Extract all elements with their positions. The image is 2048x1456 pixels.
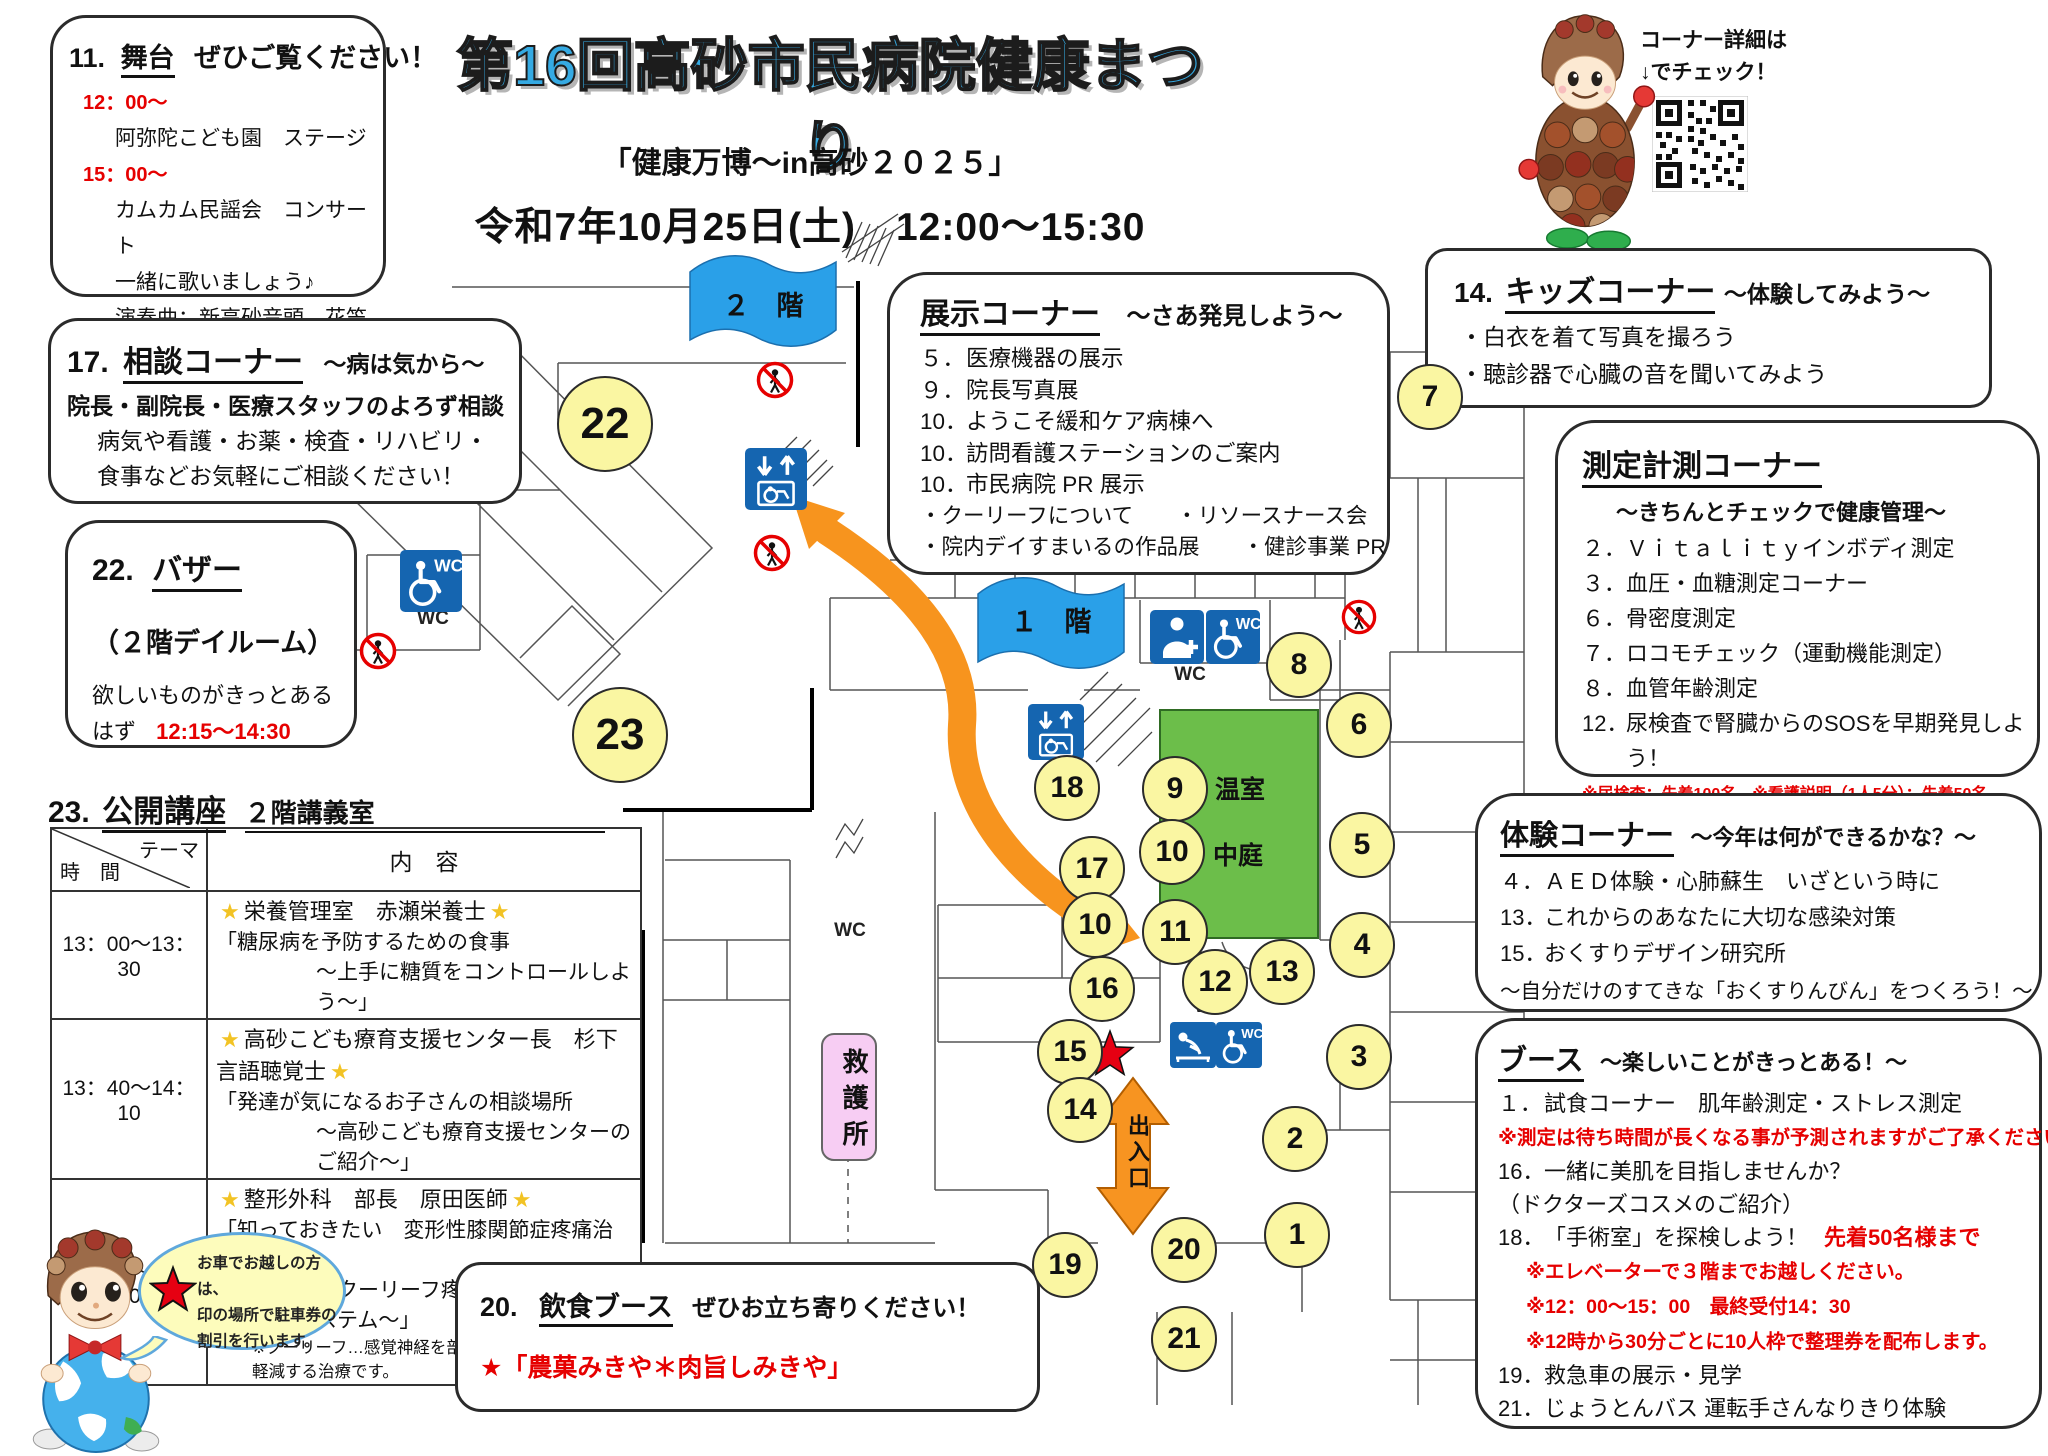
lecture-time: 13：00～13：30: [51, 891, 207, 1019]
speech-lines: お車でお越しの方は、印の場所で駐車券の割引を行います。: [197, 1251, 343, 1355]
kids-title: キッズコーナー: [1505, 276, 1715, 314]
notice-text: ※12時から30分ごとに10人枠で整理券を配布します。: [1526, 1331, 1998, 1353]
food-heading: 20. 飲食ブース ぜひお立ち寄りください！: [480, 1285, 1037, 1324]
booth-heading: ブース ～楽しいことがきっとある！～: [1498, 1037, 2039, 1079]
booth-line: ※測定は待ち時間が長くなる事が予測されますがご了承ください。: [1498, 1120, 2039, 1155]
consult-corner-box: 17. 相談コーナー ～病は気から～ 院長・副院長・医療スタッフのよろず相談病気…: [48, 318, 522, 504]
consult-line: 病気や看護・お薬・検査・リハビリ・: [97, 424, 519, 459]
exhibit-item: ９．院長写真展: [920, 375, 1387, 407]
stage-title: 舞台: [121, 43, 175, 78]
bazaar-heading: 22. バザー: [92, 545, 354, 589]
experience-corner-box: 体験コーナー ～今年は何ができるかな？～ ４．ＡＥＤ体験・心肺蘇生 いざという時…: [1475, 793, 2042, 1012]
consult-line: 食事などお気軽にご相談ください！: [97, 459, 519, 494]
experience-item: 15．おくすりデザイン研究所: [1500, 936, 2039, 972]
event-datetime: 令和7年10月25日(土) 12:00～15:30: [440, 196, 1180, 252]
map-booth-circle-8: 8: [1266, 632, 1332, 698]
map-booth-circle-18: 18: [1034, 755, 1100, 821]
item-number: ４．: [1500, 864, 1544, 900]
booth-line: １．試食コーナー 肌年齢測定・ストレス測定: [1498, 1087, 2039, 1120]
item-number: 10．: [920, 469, 966, 501]
speech-bubble-tail: [120, 1336, 180, 1376]
lecture-line: 「糖尿病を予防するための食事: [216, 926, 632, 956]
kids-corner-box: 14. キッズコーナー ～体験してみよう～ ・白衣を着て写真を撮ろう・聴診器で心…: [1425, 248, 1992, 408]
map-booth-circle-7: 7: [1397, 364, 1463, 430]
item-text: 骨密度測定: [1626, 601, 1736, 636]
item-text: 「手術室」を探検しよう！: [1544, 1225, 1808, 1250]
booth-tail: ～楽しいことがきっとある！～: [1600, 1050, 1907, 1075]
item-number: 21．: [1498, 1392, 1544, 1425]
measure-item: ３．血圧・血糖測定コーナー: [1582, 566, 2037, 601]
stage-line: カムカム民謡会 コンサート: [115, 193, 383, 265]
lecture-heading: 23. 公開講座 ２階講義室: [48, 786, 605, 831]
item-number: ９．: [920, 375, 966, 407]
exhibit-title: 展示コーナー: [920, 298, 1100, 336]
item-text: 尿検査で腎臓からのSOSを早期発見しよう！: [1626, 706, 2037, 776]
map-booth-circle-16: 16: [1069, 956, 1135, 1022]
parking-star-icon: [149, 1261, 197, 1317]
lecture-speaker: ★栄養管理室 赤瀬栄養士★: [216, 894, 632, 926]
speech-line: 印の場所で駐車券の: [197, 1303, 343, 1329]
consult-tail: ～病は気から～: [323, 351, 484, 377]
measure-heading: 測定計測コーナー: [1582, 441, 2037, 485]
exhibit-item: 10．訪問看護ステーションのご案内: [920, 438, 1387, 470]
kids-heading: 14. キッズコーナー ～体験してみよう～: [1454, 267, 1989, 311]
consult-lines: 院長・副院長・医療スタッフのよろず相談病気や看護・お薬・検査・リハビリ・食事など…: [67, 389, 519, 494]
bazaar-time: 12:15～14:30: [156, 719, 291, 744]
sparkle-icon: ★: [330, 1059, 350, 1084]
item-number: 12．: [1582, 706, 1626, 776]
map-booth-circle-3: 3: [1326, 1024, 1392, 1090]
svg-text:WC: WC: [434, 556, 462, 576]
map-booth-circle-19: 19: [1032, 1232, 1098, 1298]
item-number: 10．: [920, 438, 966, 470]
experience-item: ４．ＡＥＤ体験・心肺蘇生 いざという時に: [1500, 864, 2039, 900]
speaker-name: 整形外科 部長 原田医師: [244, 1187, 508, 1212]
kids-bullet: ・聴診器で心臓の音を聞いてみよう: [1460, 356, 1989, 393]
item-number: 16．: [1498, 1155, 1544, 1188]
speaker-name: 栄養管理室 赤瀬栄養士: [244, 899, 486, 924]
notice-text: ※エレベーターで３階までお越しください。: [1526, 1261, 1914, 1283]
item-text: 血管年齢測定: [1626, 671, 1758, 706]
bazaar-line: はず 12:15～14:30: [92, 714, 354, 746]
theme-time-cell: テーマ 時 間: [51, 828, 207, 891]
kids-number: 14.: [1454, 277, 1493, 308]
measure-subtitle: ～きちんとチェックで健康管理～: [1616, 495, 2037, 527]
booth-line: ※12時から30分ごとに10人枠で整理券を配布します。: [1526, 1324, 2039, 1359]
booth-title: ブース: [1498, 1045, 1584, 1082]
map-booth-circle-10: 10: [1139, 819, 1205, 885]
item-number: 10．: [920, 406, 966, 438]
item-text: おくすりデザイン研究所: [1544, 936, 1786, 972]
map-booth-circle-14: 14: [1047, 1077, 1113, 1143]
kids-bullets: ・白衣を着て写真を撮ろう・聴診器で心臓の音を聞いてみよう: [1460, 319, 1989, 393]
item-number: 18．: [1498, 1221, 1544, 1254]
booth-line: 19．救急車の展示・見学: [1498, 1359, 2039, 1392]
item-text: ＡＥＤ体験・心肺蘇生 いざという時に: [1544, 864, 1940, 900]
measure-corner-box: 測定計測コーナー ～きちんとチェックで健康管理～ ２．Ｖｉｔａｌｉｔｙインボディ…: [1555, 420, 2040, 777]
item-text: （ドクターズコスメのご紹介）: [1498, 1192, 1804, 1217]
floor1-label: １ 階: [978, 600, 1124, 639]
food-number: 20.: [480, 1292, 518, 1322]
speaker-name: 高砂こども療育支援センター長 杉下言語聴覚士: [216, 1027, 618, 1084]
measure-items: ２．Ｖｉｔａｌｉｔｙインボディ測定３．血圧・血糖測定コーナー６．骨密度測定７．ロ…: [1582, 531, 2037, 776]
speech-line: 割引を行います。: [197, 1329, 343, 1355]
item-text: ロコモチェック（運動機能測定）: [1626, 636, 1956, 671]
exhibit-bullet: ・院内デイすまいるの作品展 ・健診事業 PR: [920, 532, 1387, 563]
page-subtitle: 「健康万博～in高砂２０２５」: [540, 138, 1080, 182]
map-booth-circle-5: 5: [1329, 812, 1395, 878]
map-booth-circle-10: 10: [1062, 892, 1128, 958]
item-text: 救急車の展示・見学: [1544, 1363, 1742, 1388]
kids-tail: ～体験してみよう～: [1724, 281, 1930, 307]
food-booth-box: 20. 飲食ブース ぜひお立ち寄りください！ ★「農菓みきや＊肉旨しみきや」: [455, 1262, 1040, 1412]
lecture-time: 13：40～14：10: [51, 1019, 207, 1179]
item-number: 19．: [1498, 1359, 1544, 1392]
booth-line: 21．じょうとんバス 運転手さんなりきり体験: [1498, 1392, 2039, 1425]
sparkle-icon: ★: [220, 899, 240, 924]
flyer-canvas: WC WC WC: [0, 0, 2048, 1456]
experience-items: ４．ＡＥＤ体験・心肺蘇生 いざという時に13．これからのあなたに大切な感染対策1…: [1500, 864, 2039, 972]
no-entry-icon: [359, 632, 397, 675]
map-booth-circle-1: 1: [1264, 1202, 1330, 1268]
booth-line: 18．「手術室」を探検しよう！先着50名様まで: [1498, 1221, 2039, 1254]
item-text: 市民病院 PR 展示: [966, 469, 1145, 501]
item-text: 訪問看護ステーションのご案内: [966, 438, 1281, 470]
item-text: じょうとんバス 運転手さんなりきり体験: [1544, 1396, 1946, 1421]
exhibit-items: ５．医療機器の展示９．院長写真展10．ようこそ緩和ケア病棟へ10．訪問看護ステー…: [920, 343, 1387, 563]
map-booth-circle-23: 23: [572, 687, 668, 783]
experience-title: 体験コーナー: [1500, 820, 1674, 857]
notice-text: 先着50名様まで: [1824, 1225, 1980, 1250]
stage-line: 12：00～: [83, 85, 383, 121]
food-tail: ぜひお立ち寄りください！: [692, 1295, 980, 1322]
item-number: ８．: [1582, 671, 1626, 706]
map-booth-circle-21: 21: [1151, 1306, 1217, 1372]
consult-title: 相談コーナー: [123, 346, 303, 384]
item-text: 試食コーナー 肌年齢測定・ストレス測定: [1544, 1091, 1962, 1116]
map-booth-circle-13: 13: [1249, 939, 1315, 1005]
col-theme: テーマ: [139, 834, 199, 863]
pinecone-mascot: [1512, 2, 1662, 248]
stage-line: 15：00～: [83, 157, 383, 193]
first-aid-staff-icon: [1150, 610, 1204, 669]
svg-text:WC: WC: [1241, 1026, 1262, 1041]
notice-text: ※測定は待ち時間が長くなる事が予測されますがご了承ください。: [1498, 1127, 2048, 1149]
item-text: 院長写真展: [966, 375, 1079, 407]
qr-code: [1652, 96, 1748, 192]
item-number: １．: [1498, 1087, 1544, 1120]
col-time: 時 間: [60, 856, 120, 885]
bazaar-number: 22.: [92, 554, 134, 587]
accessible-toilet-icon: WC: [400, 550, 462, 617]
booth-line: （ドクターズコスメのご紹介）: [1498, 1188, 2039, 1221]
item-number: 15．: [1500, 936, 1544, 972]
item-number: ５．: [920, 343, 966, 375]
exhibit-corner-box: 展示コーナー ～さあ発見しよう～ ５．医療機器の展示９．院長写真展10．ようこそ…: [887, 272, 1390, 575]
experience-tail: ～今年は何ができるかな？～: [1690, 825, 1976, 850]
item-number: 13．: [1500, 900, 1544, 936]
measure-item: ８．血管年齢測定: [1582, 671, 2037, 706]
map-booth-circle-20: 20: [1151, 1217, 1217, 1283]
item-number: ７．: [1582, 636, 1626, 671]
booth-lines: １．試食コーナー 肌年齢測定・ストレス測定※測定は待ち時間が長くなる事が予測され…: [1498, 1087, 2039, 1425]
lecture-content: ★栄養管理室 赤瀬栄養士★「糖尿病を予防するための食事～上手に糖質をコントロール…: [207, 891, 641, 1019]
map-booth-circle-22: 22: [557, 376, 653, 472]
floor2-label: ２ 階: [690, 284, 836, 323]
booth-line: ※エレベーターで３階までお越しください。: [1526, 1254, 2039, 1289]
lecture-line: ～上手に糖質をコントロールしよう～」: [316, 956, 632, 1016]
accessible-toilet-icon: WC: [1216, 1022, 1262, 1073]
stage-number: 11.: [69, 43, 105, 73]
map-booth-circle-9: 9: [1142, 756, 1208, 822]
food-vendors: ★「農菓みきや＊肉旨しみきや」: [480, 1348, 1037, 1384]
speech-bubble: お車でお越しの方は、印の場所で駐車券の割引を行います。: [138, 1232, 346, 1350]
sparkle-icon: ★: [490, 899, 510, 924]
lecture-title: 公開講座: [102, 794, 226, 833]
speech-line: お車でお越しの方は、: [197, 1251, 343, 1303]
bazaar-box: 22. バザー （２階デイルーム） 欲しいものがきっとある はず 12:15～1…: [65, 520, 357, 748]
item-text: 医療機器の展示: [966, 343, 1124, 375]
qr-note-line1: コーナー詳細は: [1640, 24, 1787, 54]
map-booth-circle-6: 6: [1326, 692, 1392, 758]
experience-tail-line: ～自分だけのすてきな「おくすりんびん」をつくろう！～: [1500, 974, 2039, 1004]
sparkle-icon: ★: [220, 1027, 240, 1052]
lecture-header-row: テーマ 時 間 内 容: [51, 828, 641, 891]
measure-item: ７．ロコモチェック（運動機能測定）: [1582, 636, 2037, 671]
map-booth-circle-15: 15: [1037, 1019, 1103, 1085]
stage-tail: ぜひご覧ください！: [194, 43, 437, 73]
item-number: ２．: [1582, 531, 1626, 566]
no-entry-icon: [753, 534, 791, 577]
bazaar-room: （２階デイルーム）: [92, 621, 354, 660]
exhibit-bullet: ・クーリーフについて ・リソースナース会: [920, 501, 1387, 532]
experience-heading: 体験コーナー ～今年は何ができるかな？～: [1500, 812, 2039, 854]
svg-text:WC: WC: [1236, 616, 1260, 633]
item-text: ようこそ緩和ケア病棟へ: [966, 406, 1214, 438]
bazaar-line-plain: はず: [92, 719, 136, 744]
consult-number: 17.: [67, 346, 109, 379]
notice-text: ※12：00～15：00 最終受付14：30: [1526, 1296, 1851, 1318]
lecture-speaker: ★整形外科 部長 原田医師★: [216, 1182, 632, 1214]
lecture-speaker: ★高砂こども療育支援センター長 杉下言語聴覚士★: [216, 1022, 632, 1086]
exhibit-tail: ～さあ発見しよう～: [1126, 303, 1342, 330]
booth-line: ※12：00～15：00 最終受付14：30: [1526, 1289, 2039, 1324]
lecture-line: ～高砂こども療育支援センターのご紹介～」: [316, 1116, 632, 1176]
measure-item: ６．骨密度測定: [1582, 601, 2037, 636]
item-text: 血圧・血糖測定コーナー: [1626, 566, 1868, 601]
lecture-row: 13：40～14：10★高砂こども療育支援センター長 杉下言語聴覚士★「発達が気…: [51, 1019, 641, 1179]
measure-item: ２．Ｖｉｔａｌｉｔｙインボディ測定: [1582, 531, 2037, 566]
measure-title: 測定計測コーナー: [1582, 450, 1822, 488]
sparkle-icon: ★: [220, 1187, 240, 1212]
wc-label: WC: [828, 920, 872, 942]
accessible-toilet-icon: WC: [1206, 610, 1260, 669]
stage-line: 阿弥陀こども園 ステージ: [115, 121, 383, 157]
lecture-row: 13：00～13：30★栄養管理室 赤瀬栄養士★「糖尿病を予防するための食事～上…: [51, 891, 641, 1019]
baby-changing-icon: [1170, 1022, 1216, 1073]
exhibit-item: ５．医療機器の展示: [920, 343, 1387, 375]
item-text: これからのあなたに大切な感染対策: [1544, 900, 1896, 936]
lecture-room: ２階講義室: [245, 798, 605, 833]
lecture-content: ★高砂こども療育支援センター長 杉下言語聴覚士★「発達が気になるお子さんの相談場…: [207, 1019, 641, 1179]
stage-line: 一緒に歌いましょう♪: [115, 265, 383, 301]
consult-heading: 17. 相談コーナー ～病は気から～: [67, 337, 519, 381]
item-number: ６．: [1582, 601, 1626, 636]
booth-list-box: ブース ～楽しいことがきっとある！～ １．試食コーナー 肌年齢測定・ストレス測定…: [1475, 1018, 2042, 1429]
stage-heading: 11. 舞台 ぜひご覧ください！: [69, 36, 383, 75]
no-entry-icon: [1341, 599, 1377, 640]
item-text: 一緒に美肌を目指しませんか？: [1544, 1159, 1851, 1184]
item-text: Ｖｉｔａｌｉｔｙインボディ測定: [1626, 531, 1954, 566]
lecture-number: 23.: [48, 796, 90, 829]
booth-line: 16．一緒に美肌を目指しませんか？: [1498, 1155, 2039, 1188]
lecture-line: 「発達が気になるお子さんの相談場所: [216, 1086, 632, 1116]
col-content: 内 容: [207, 828, 641, 891]
exhibit-item: 10．ようこそ緩和ケア病棟へ: [920, 406, 1387, 438]
exhibit-item: 10．市民病院 PR 展示: [920, 469, 1387, 501]
stage-info-box: 11. 舞台 ぜひご覧ください！ 12：00～阿弥陀こども園 ステージ15：00…: [50, 15, 386, 297]
bazaar-line: 欲しいものがきっとある: [92, 678, 354, 710]
sparkle-icon: ★: [512, 1187, 532, 1212]
exhibit-heading: 展示コーナー ～さあ発見しよう～: [920, 289, 1387, 333]
entrance-label: 出入口: [1121, 1114, 1153, 1192]
item-number: ３．: [1582, 566, 1626, 601]
food-title: 飲食ブース: [539, 1292, 673, 1327]
consult-line: 院長・副院長・医療スタッフのよろず相談: [67, 389, 519, 424]
measure-item: 12．尿検査で腎臓からのSOSを早期発見しよう！: [1582, 706, 2037, 776]
map-booth-circle-2: 2: [1262, 1106, 1328, 1172]
map-booth-circle-12: 12: [1182, 949, 1248, 1015]
bazaar-title: バザー: [152, 554, 242, 592]
first-aid-label: 救護所: [836, 1048, 873, 1156]
experience-item: 13．これからのあなたに大切な感染対策: [1500, 900, 2039, 936]
no-entry-icon: [756, 361, 794, 404]
elevator-icon: [745, 448, 807, 515]
map-booth-circle-4: 4: [1329, 912, 1395, 978]
kids-bullet: ・白衣を着て写真を撮ろう: [1460, 319, 1989, 356]
